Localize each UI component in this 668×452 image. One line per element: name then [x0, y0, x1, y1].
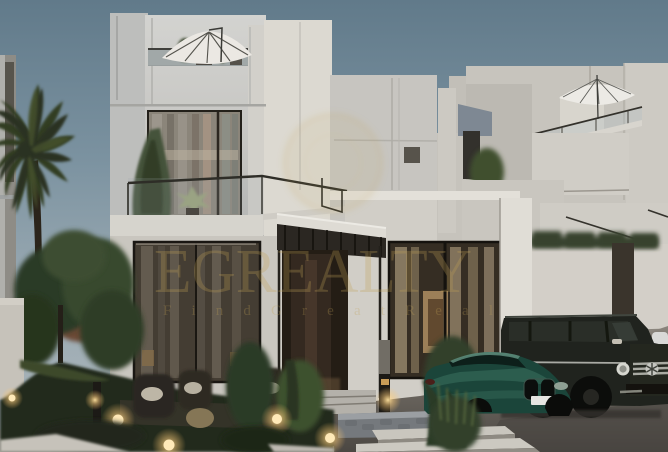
svg-text:EGREALTY: EGREALTY	[154, 238, 472, 306]
